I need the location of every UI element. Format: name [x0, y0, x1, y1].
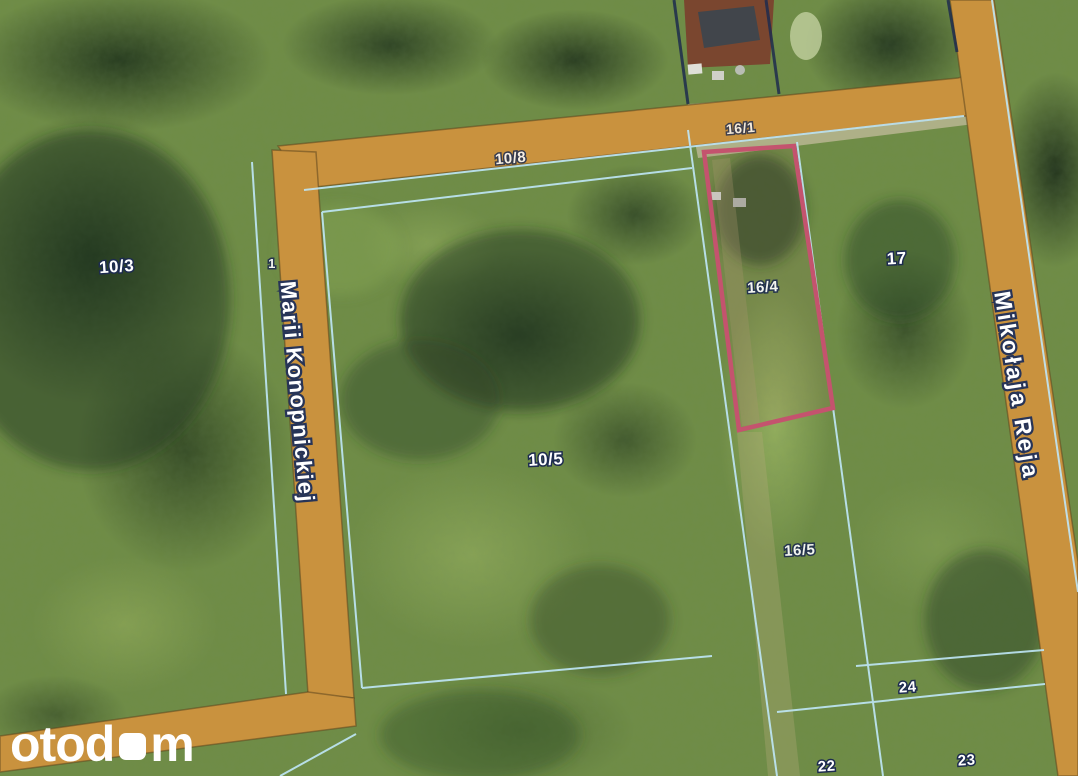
satellite-map[interactable]: 10/3 10/8 16/1 1 16/4 17 10/5 16/5 24 22… [0, 0, 1078, 776]
parcel-label-16-4: 16/4 [747, 278, 779, 297]
parcel-label-17: 17 [886, 248, 907, 268]
parcel-label-10-3: 10/3 [98, 256, 134, 277]
otodom-a-square-icon [119, 733, 146, 760]
parcel-label-22: 22 [817, 757, 836, 775]
parcel-label-10-5: 10/5 [528, 449, 564, 470]
parcel-label-partial-1: 1 [268, 256, 276, 271]
parcel-label-23: 23 [957, 751, 976, 769]
parcel-label-16-5: 16/5 [784, 541, 816, 560]
parcel-label-24: 24 [898, 678, 917, 696]
map-overlay: 10/3 10/8 16/1 1 16/4 17 10/5 16/5 24 22… [0, 0, 1078, 776]
otodom-logo-text-left: otod [10, 716, 114, 772]
otodom-logo: otod m [10, 716, 194, 772]
otodom-logo-text-right: m [150, 716, 193, 772]
parcel-label-10-8: 10/8 [494, 149, 527, 169]
parcel-label-16-1: 16/1 [725, 119, 756, 137]
